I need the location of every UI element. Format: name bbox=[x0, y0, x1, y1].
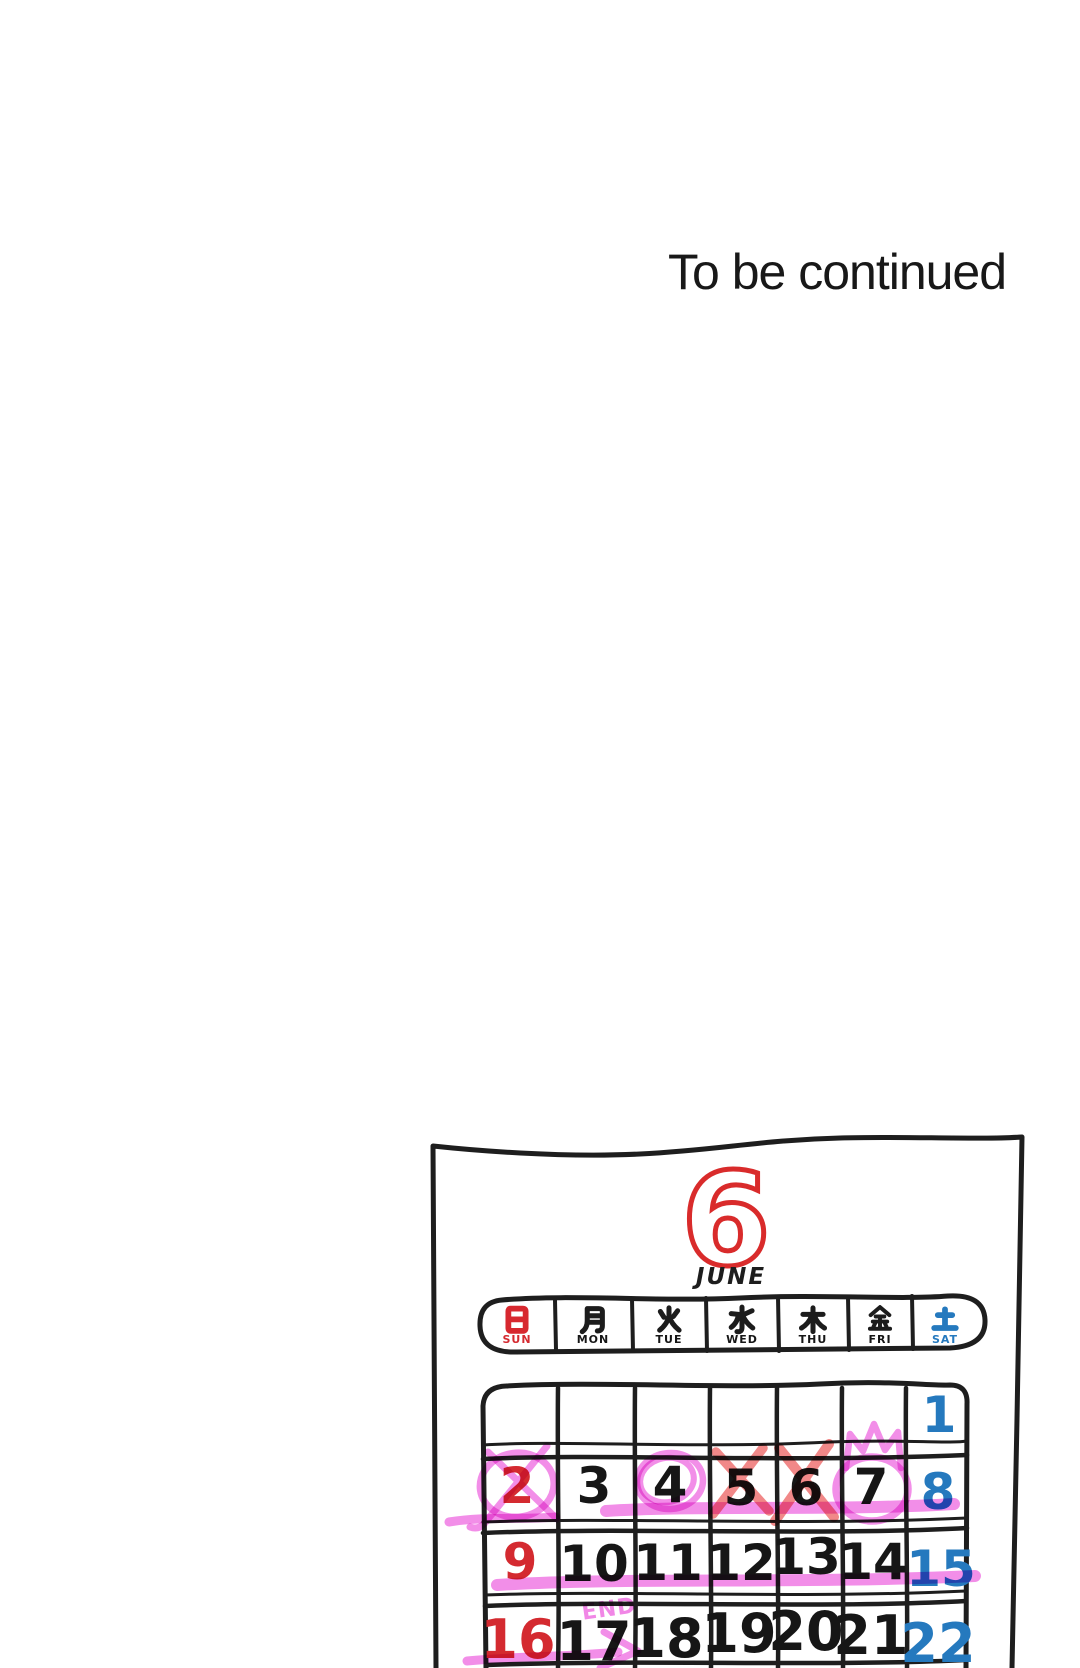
day-label-mon: MON bbox=[577, 1333, 610, 1346]
date-20: 20 bbox=[768, 1600, 843, 1663]
date-15: 15 bbox=[906, 1540, 976, 1598]
date-8: 8 bbox=[921, 1463, 956, 1521]
kanji-thu-icon bbox=[801, 1308, 824, 1332]
kanji-fri-icon bbox=[870, 1307, 890, 1329]
kanji-sat-icon bbox=[934, 1309, 956, 1328]
kanji-mon-icon bbox=[582, 1309, 602, 1332]
pink-highlight-week2 bbox=[606, 1504, 954, 1511]
date-19: 19 bbox=[701, 1602, 776, 1665]
pink-highlight-week2-left bbox=[449, 1517, 556, 1522]
day-header-row: SUN MON TUE WED THU FRI SAT bbox=[480, 1296, 985, 1352]
kanji-tue-icon bbox=[660, 1308, 679, 1330]
date-22: 22 bbox=[900, 1612, 975, 1668]
day-label-tue: TUE bbox=[656, 1333, 683, 1346]
day-label-sat: SAT bbox=[932, 1333, 958, 1346]
kanji-sun-icon bbox=[508, 1309, 525, 1331]
month-name: JUNE bbox=[692, 1264, 766, 1290]
date-21: 21 bbox=[833, 1604, 908, 1667]
pink-highlight-week3 bbox=[497, 1576, 975, 1585]
date-numbers: 1 2 3 4 5 6 7 8 9 10 11 12 13 14 15 16 1… bbox=[480, 1386, 975, 1668]
calendar-illustration: 6 JUNE SUN MON TUE WED THU bbox=[0, 0, 1080, 1668]
day-label-thu: THU bbox=[799, 1333, 828, 1346]
day-label-wed: WED bbox=[726, 1333, 758, 1346]
date-1: 1 bbox=[922, 1386, 957, 1444]
day-label-sun: SUN bbox=[502, 1333, 531, 1346]
day-label-fri: FRI bbox=[868, 1333, 891, 1346]
date-18: 18 bbox=[628, 1607, 703, 1668]
kanji-wed-icon bbox=[731, 1307, 753, 1332]
